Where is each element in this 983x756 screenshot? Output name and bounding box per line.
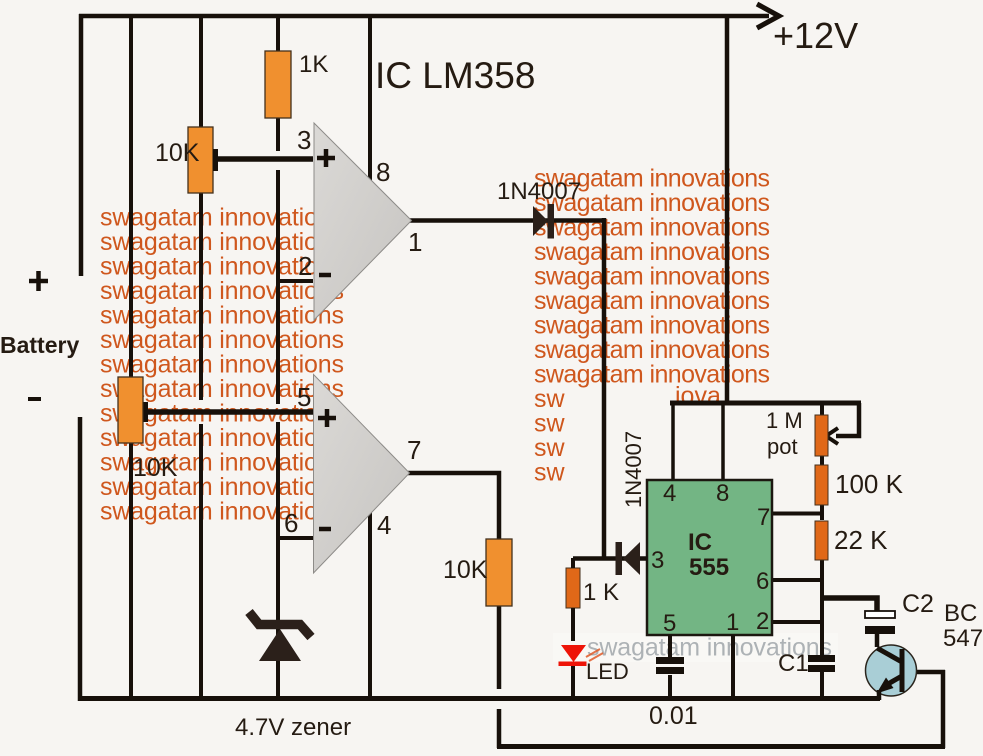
svg-text:IC: IC: [688, 529, 712, 556]
svg-text:5: 5: [663, 610, 676, 637]
svg-text:10K: 10K: [443, 556, 488, 584]
svg-text:10K: 10K: [155, 139, 200, 167]
svg-text:547: 547: [943, 625, 983, 652]
svg-text:1N4007: 1N4007: [621, 431, 646, 508]
svg-text:5: 5: [297, 382, 311, 412]
svg-text:3: 3: [651, 547, 664, 574]
svg-text:3: 3: [297, 125, 311, 155]
svg-text:4: 4: [377, 510, 391, 540]
svg-text:C2: C2: [902, 590, 934, 618]
svg-text:1: 1: [408, 227, 422, 257]
svg-text:1K: 1K: [299, 51, 328, 78]
svg-text:2: 2: [298, 251, 312, 281]
svg-text:+12V: +12V: [773, 15, 858, 56]
svg-text:555: 555: [689, 554, 729, 581]
svg-text:100 K: 100 K: [835, 469, 904, 499]
svg-text:2: 2: [756, 608, 769, 635]
svg-text:1N4007: 1N4007: [497, 178, 581, 205]
svg-text:22 K: 22 K: [834, 525, 888, 555]
svg-text:C1: C1: [778, 650, 809, 677]
svg-text:swagatam innovations: swagatam innovations: [534, 361, 770, 389]
svg-text:4.7V zener: 4.7V zener: [235, 714, 351, 741]
svg-text:6: 6: [756, 568, 769, 595]
svg-text:pot: pot: [767, 434, 798, 459]
svg-text:7: 7: [407, 435, 421, 465]
svg-text:10K: 10K: [133, 454, 178, 482]
svg-text:1 K: 1 K: [583, 579, 619, 606]
svg-text:1: 1: [726, 609, 739, 636]
svg-text:4: 4: [663, 480, 676, 507]
svg-text:1 M: 1 M: [766, 408, 803, 433]
svg-text:6: 6: [284, 508, 298, 538]
svg-text:7: 7: [757, 504, 770, 531]
svg-text:sw: sw: [534, 459, 566, 487]
svg-text:LED: LED: [586, 659, 629, 684]
svg-text:8: 8: [716, 480, 729, 507]
svg-text:iova: iova: [675, 382, 721, 410]
svg-text:0.01: 0.01: [649, 702, 698, 730]
svg-text:IC LM358: IC LM358: [375, 55, 535, 96]
svg-text:8: 8: [376, 157, 390, 187]
svg-text:BC: BC: [944, 600, 977, 627]
svg-text:Battery: Battery: [0, 332, 79, 358]
svg-text:swagatam innovations: swagatam innovations: [100, 497, 344, 525]
